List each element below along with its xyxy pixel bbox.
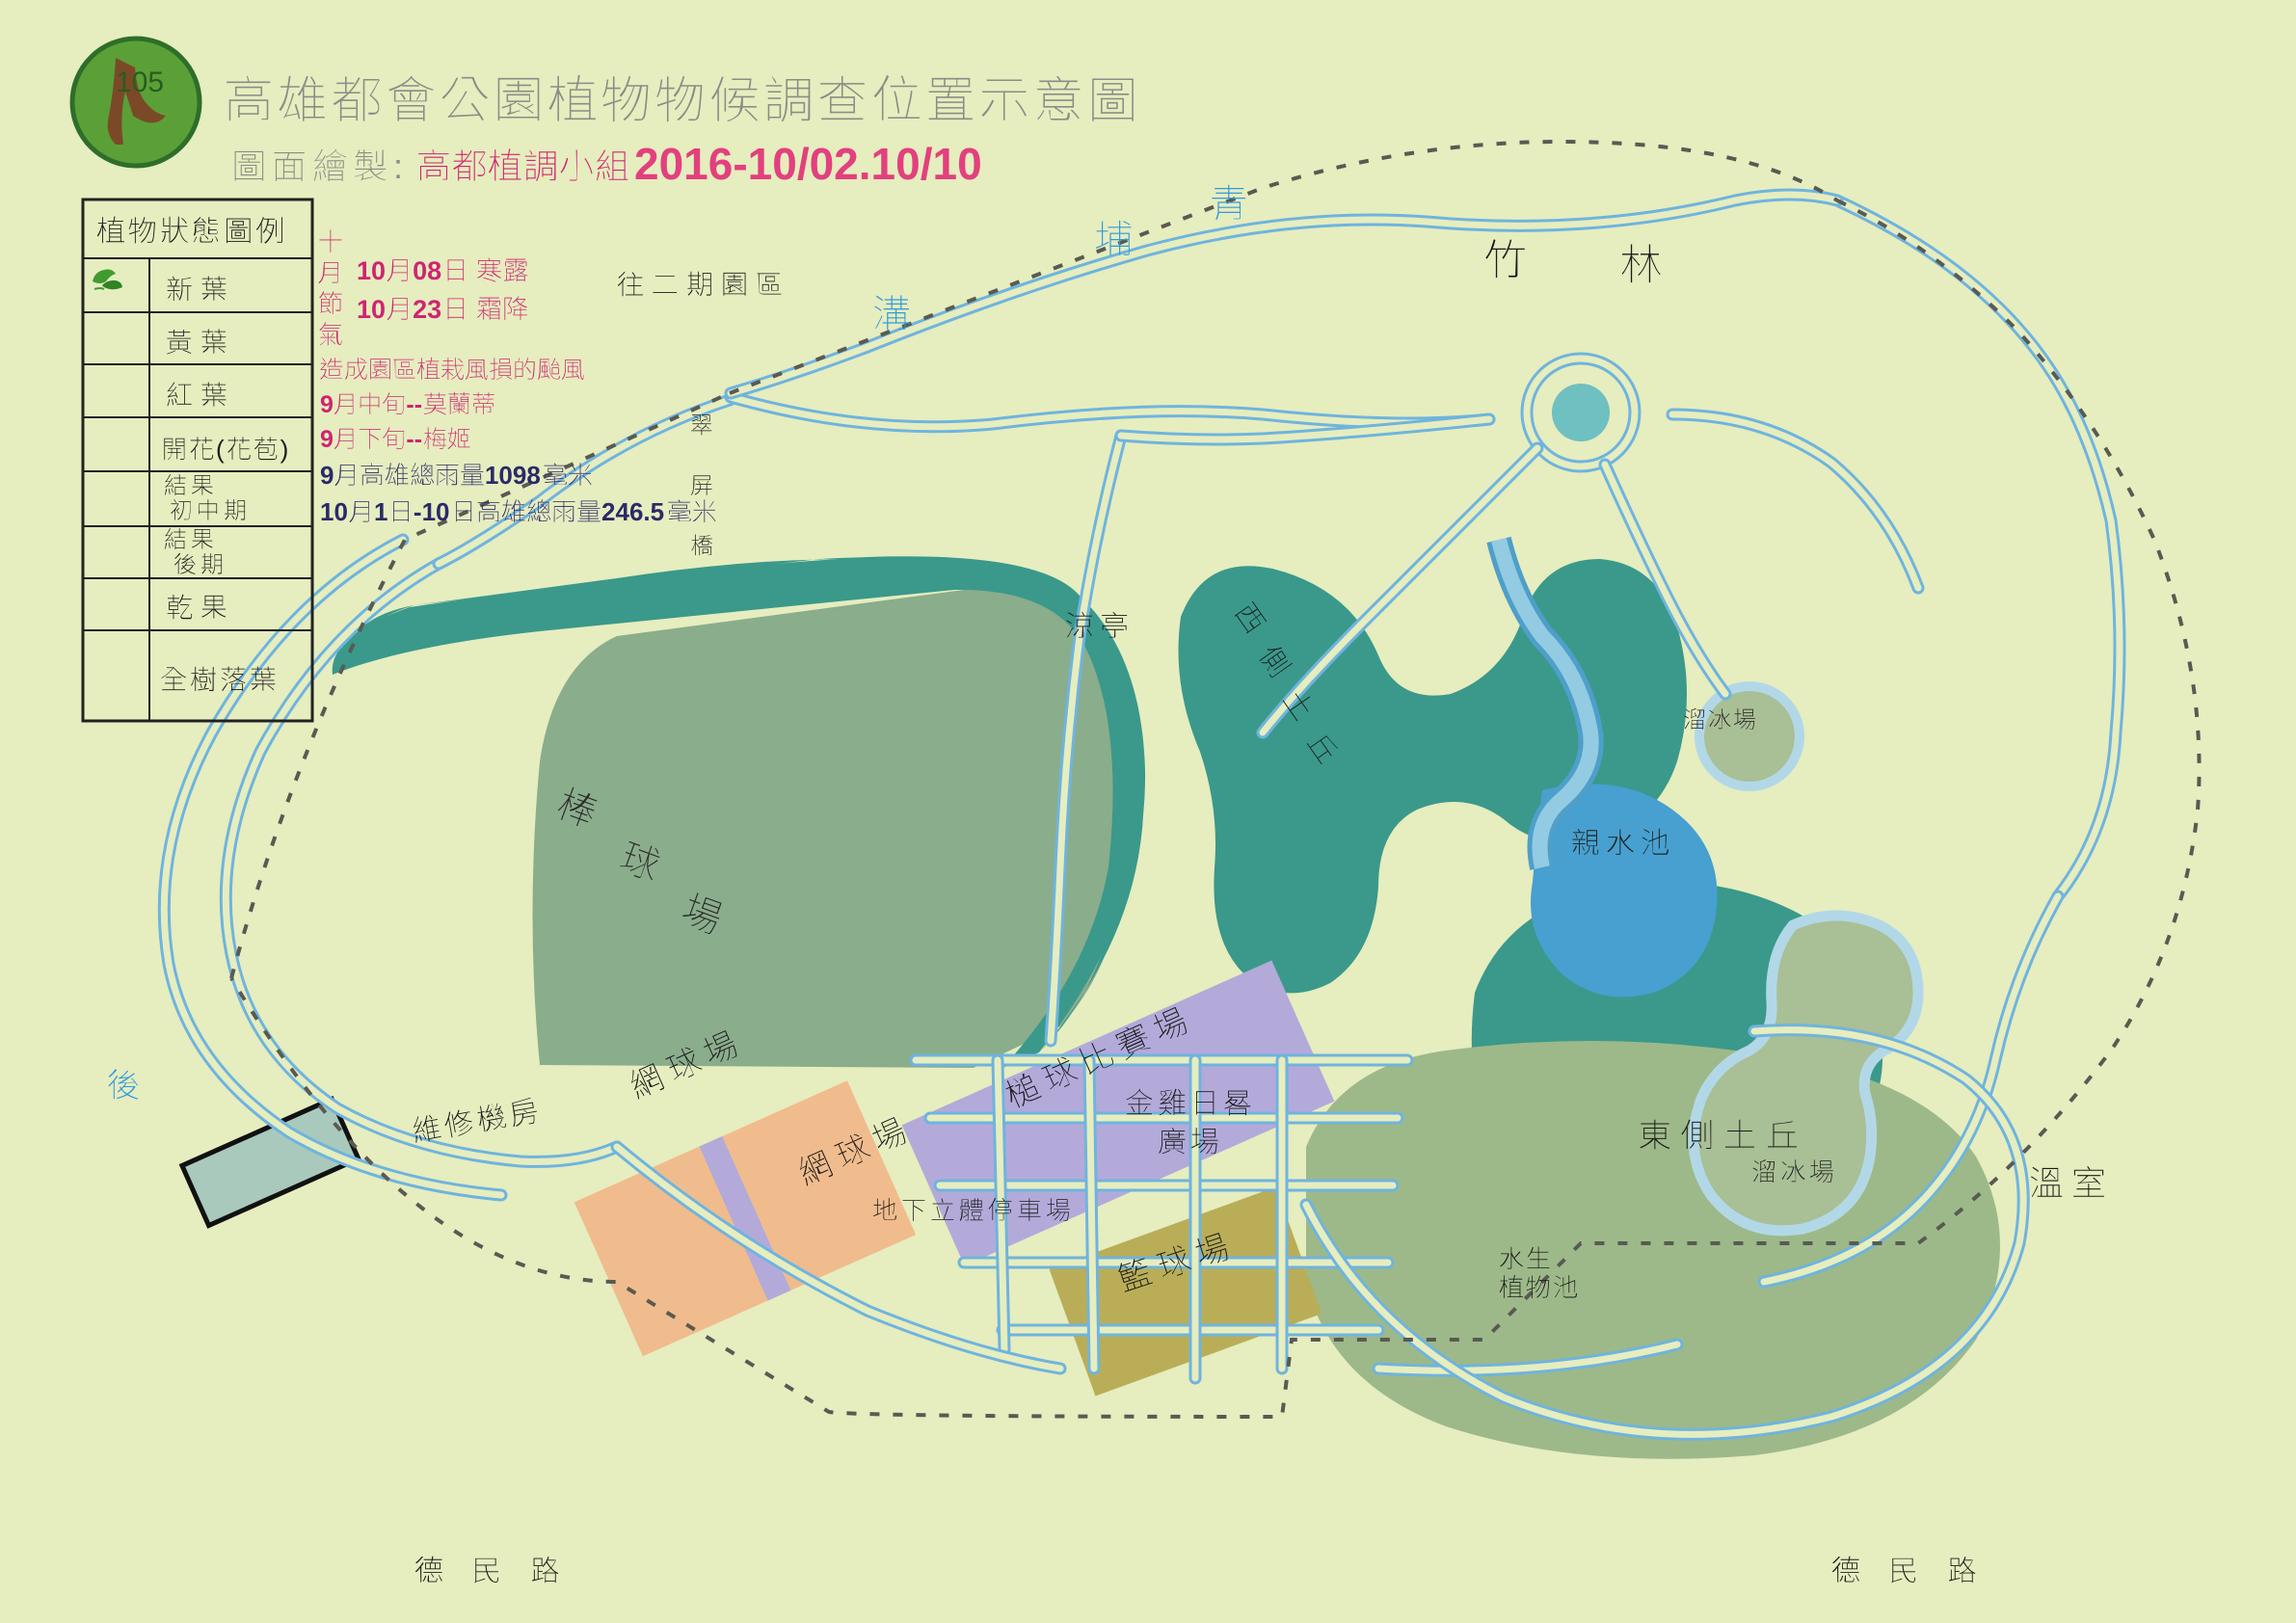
svg-text::: :	[393, 146, 403, 186]
svg-text:10: 10	[357, 295, 386, 324]
svg-text:9: 9	[320, 391, 334, 418]
svg-text:23: 23	[413, 295, 441, 324]
svg-text:--: --	[406, 426, 422, 453]
svg-text:(: (	[216, 435, 225, 464]
svg-text:9: 9	[320, 426, 334, 453]
svg-text:--: --	[406, 391, 422, 418]
svg-text:10: 10	[357, 256, 386, 285]
svg-text:2016-10/02.10/10: 2016-10/02.10/10	[634, 139, 982, 189]
svg-text:105: 105	[116, 67, 164, 98]
svg-text:08: 08	[413, 256, 441, 285]
svg-text:10: 10	[320, 497, 348, 526]
svg-text:1: 1	[374, 497, 387, 526]
svg-text:1098: 1098	[485, 461, 541, 490]
svg-text:-10: -10	[414, 497, 450, 526]
svg-text:9: 9	[320, 461, 334, 490]
svg-text:): )	[280, 435, 289, 464]
svg-text:246.5: 246.5	[601, 497, 664, 526]
